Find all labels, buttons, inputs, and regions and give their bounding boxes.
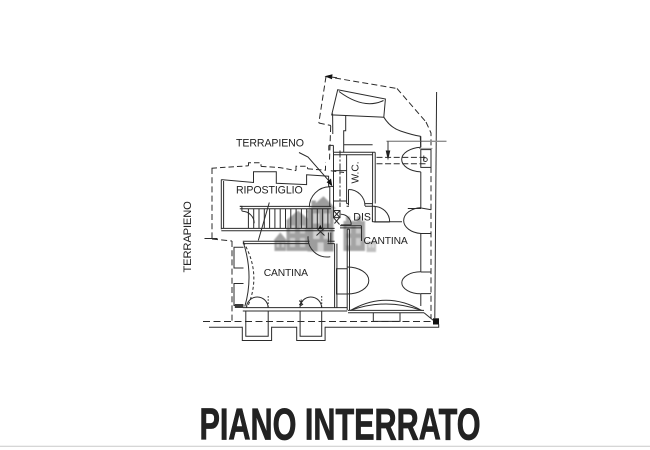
- svg-text:DIS.: DIS.: [353, 212, 374, 224]
- svg-text:TERRAPIENO: TERRAPIENO: [236, 138, 304, 150]
- svg-text:W.C.: W.C.: [351, 161, 362, 183]
- svg-text:CANTINA: CANTINA: [264, 268, 308, 279]
- svg-text:TERRAPIENO: TERRAPIENO: [182, 201, 194, 273]
- svg-text:RIPOSTIGLIO: RIPOSTIGLIO: [236, 184, 303, 196]
- svg-text:PIANO INTERRATO: PIANO INTERRATO: [200, 401, 481, 450]
- svg-text:CANTINA: CANTINA: [364, 236, 408, 247]
